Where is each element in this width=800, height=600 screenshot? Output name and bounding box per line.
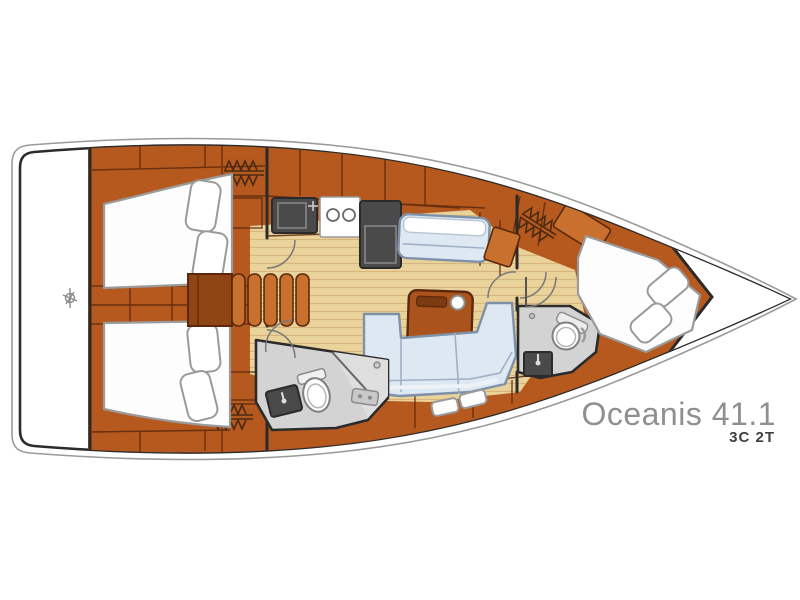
variant-label: 3C 2T [729,429,775,446]
hinge [374,362,380,368]
yacht-floorplan: Oceanis 41.1 3C 2T [0,0,800,600]
pillow [184,179,221,233]
washbasin [524,352,552,376]
fridge [360,201,401,268]
companionway-steps [188,274,309,326]
port-bench [398,214,490,263]
hinge [530,314,535,319]
floorplan-drawing [0,0,800,600]
shower-fitting [351,388,379,405]
model-label: Oceanis 41.1 [581,396,776,433]
pillow [186,323,221,374]
aft-starboard-cabin [104,321,230,427]
cup [450,295,464,309]
